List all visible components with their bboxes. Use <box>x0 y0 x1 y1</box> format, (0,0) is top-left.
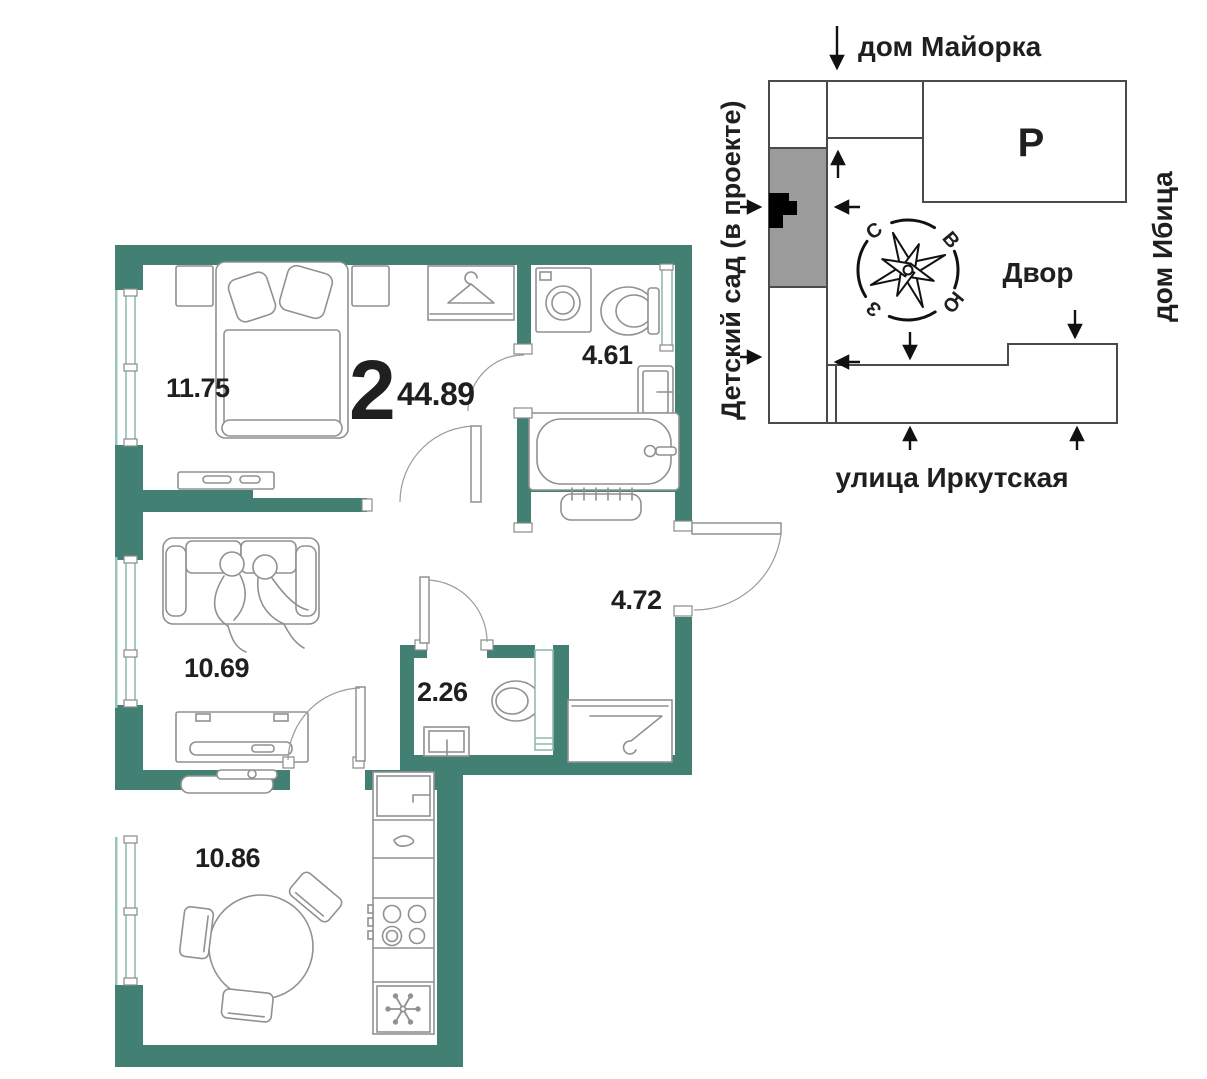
bathtub <box>529 413 679 490</box>
building-bottom-wing <box>827 344 1117 423</box>
kitchen-counter <box>368 772 434 1034</box>
hallway-area-label: 4.72 <box>611 585 662 615</box>
toilet-bathroom <box>601 287 659 335</box>
building-top-wing <box>827 81 923 138</box>
wardrobe <box>428 266 514 320</box>
floor-plan: 11.75 4.61 10.69 2.26 4.72 10.86 2 44.89 <box>115 245 781 1067</box>
bathroom-furniture <box>529 268 679 520</box>
site-plan: С В Ю З дом Майорка улица Иркутская Двор… <box>716 26 1178 493</box>
neighbor-left-label: Детский сад (в проекте) <box>716 101 746 420</box>
bedroom-window <box>124 289 137 446</box>
compass-north: С <box>862 218 887 244</box>
kitchen-area-label: 10.86 <box>195 843 261 873</box>
living-window <box>124 556 137 707</box>
parking-label: Р <box>1018 121 1045 165</box>
nightstand-right <box>352 266 389 306</box>
compass-east: В <box>938 228 964 253</box>
bedroom-area-label: 11.75 <box>166 373 230 403</box>
street-label: улица Иркутская <box>835 462 1068 493</box>
compass-south: Ю <box>938 287 968 317</box>
sink-wc <box>424 727 469 756</box>
kitchen-window <box>124 836 137 985</box>
double-bed <box>216 262 348 438</box>
neighbor-top-label: дом Майорка <box>858 31 1042 62</box>
compass-rose: С В Ю З <box>858 218 968 321</box>
towel-radiator <box>561 488 641 520</box>
nightstand-left <box>176 266 213 306</box>
wc-area-label: 2.26 <box>417 677 468 707</box>
compass-star <box>871 233 945 307</box>
fridge <box>377 776 430 816</box>
plan-canvas: 11.75 4.61 10.69 2.26 4.72 10.86 2 44.89 <box>0 0 1207 1079</box>
bedroom-door <box>362 426 481 511</box>
neighbor-right-label: дом Ибица <box>1147 171 1178 322</box>
duct-shaft <box>535 650 553 750</box>
freezer <box>377 986 430 1032</box>
dining-table <box>179 870 344 1023</box>
hallway-furniture <box>568 700 672 762</box>
total-area-label: 44.89 <box>397 376 475 412</box>
compass-west: З <box>862 296 886 321</box>
dresser <box>178 472 274 489</box>
kitchen-furniture <box>179 770 434 1034</box>
courtyard-label: Двор <box>1003 257 1074 288</box>
bathroom-door <box>468 344 532 418</box>
wc-door <box>415 577 493 650</box>
washing-machine <box>536 268 591 332</box>
floorplan-page: 11.75 4.61 10.69 2.26 4.72 10.86 2 44.89 <box>0 0 1207 1079</box>
sink-bathroom <box>638 366 673 418</box>
hall-wardrobe <box>568 700 672 762</box>
rooms-count-label: 2 <box>349 343 394 437</box>
living-area-label: 10.69 <box>184 653 250 683</box>
bathroom-window <box>660 264 673 351</box>
bathroom-area-label: 4.61 <box>582 340 633 370</box>
